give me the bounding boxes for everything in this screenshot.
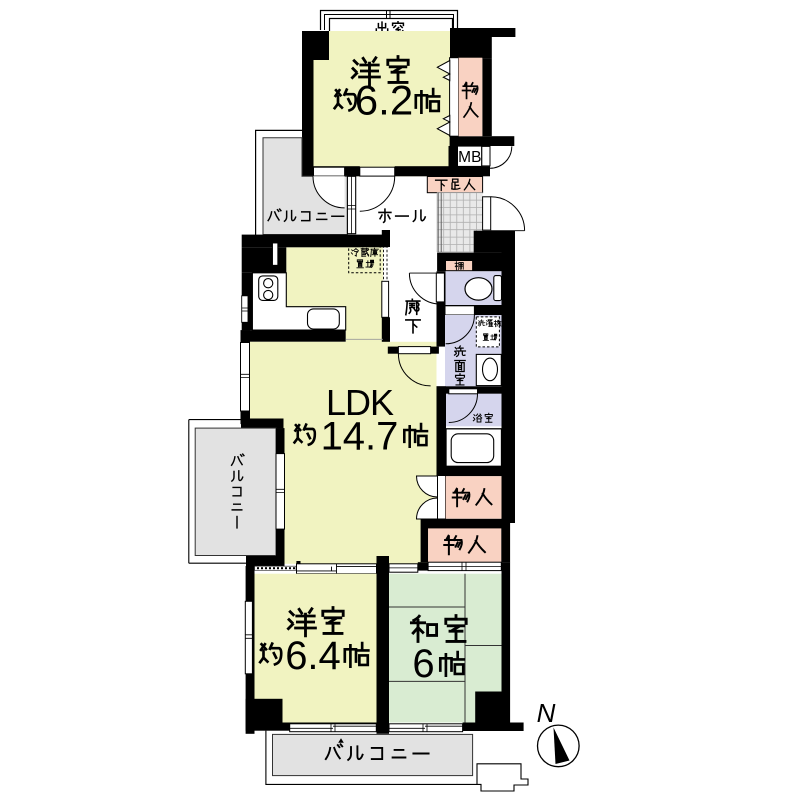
svg-text:14.7: 14.7: [321, 415, 399, 459]
svg-text:N: N: [537, 698, 556, 728]
svg-text:6.4: 6.4: [285, 634, 341, 678]
svg-text:6: 6: [412, 642, 434, 686]
svg-text:6.2: 6.2: [355, 77, 413, 124]
svg-text:MB: MB: [458, 149, 481, 166]
